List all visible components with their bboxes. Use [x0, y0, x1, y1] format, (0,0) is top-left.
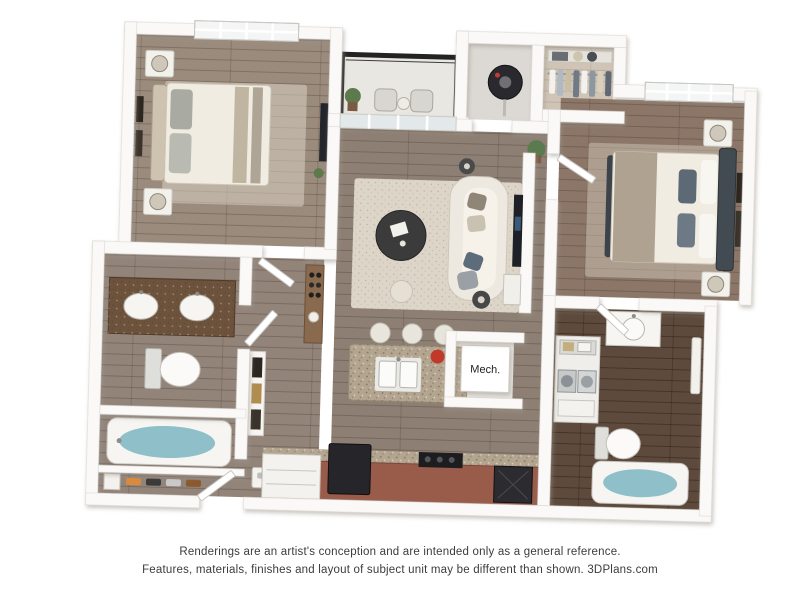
- bar-console: [304, 265, 324, 343]
- patio-chair: [410, 90, 433, 113]
- shoes: [126, 478, 141, 485]
- laundry-cabinet: [558, 400, 594, 417]
- floorplan-svg: Mech.: [0, 0, 800, 551]
- sink: [124, 293, 159, 320]
- framed-art: [251, 383, 262, 403]
- pouf: [390, 280, 413, 303]
- wall-art: [135, 130, 143, 156]
- bed-1: [150, 82, 271, 185]
- wall: [547, 110, 560, 154]
- vase: [309, 312, 319, 322]
- pillow: [700, 160, 717, 204]
- window-bedroom1: [194, 21, 298, 42]
- framed-art: [252, 357, 263, 377]
- balcony-floor: [340, 56, 456, 119]
- toilet-2: [595, 427, 641, 460]
- blanket-stripe: [232, 87, 249, 183]
- wall: [454, 31, 469, 131]
- plant-pot: [347, 102, 357, 111]
- coffee-table: [375, 210, 426, 261]
- barstool: [370, 323, 391, 344]
- refrigerator: [328, 444, 371, 495]
- table-lamp: [707, 276, 723, 292]
- throw-pillow: [466, 215, 486, 233]
- table-lamp: [710, 125, 726, 141]
- wall: [444, 331, 456, 407]
- media-console: [503, 274, 521, 304]
- disclaimer-line1: Renderings are an artist's conception an…: [0, 546, 800, 558]
- headboard: [716, 148, 736, 270]
- barstool: [402, 324, 423, 345]
- table-lamp: [150, 193, 166, 209]
- shoes: [146, 478, 161, 485]
- window-bedroom2: [645, 82, 733, 102]
- entry-cabinet: [262, 454, 321, 500]
- patio-chair: [374, 89, 397, 112]
- accent-pillow: [677, 213, 696, 247]
- tv-screen-glint: [515, 217, 521, 231]
- blanket: [612, 151, 657, 262]
- wall: [446, 331, 524, 343]
- sofa: [447, 176, 508, 302]
- disclaimer-line2: Features, materials, finishes and layout…: [0, 564, 800, 576]
- laundry-nook: [554, 336, 600, 423]
- mechanical-closet: Mech.: [461, 345, 510, 392]
- shoes: [186, 480, 201, 487]
- sink: [180, 294, 215, 321]
- bathtub-2: [592, 461, 689, 506]
- towel-bar: [691, 338, 702, 394]
- page: Mech.: [0, 0, 800, 600]
- shoes: [166, 479, 181, 486]
- accent-pillow: [678, 169, 697, 203]
- wall: [239, 257, 252, 305]
- bathtub: [106, 417, 231, 466]
- wall-art: [136, 96, 144, 122]
- pillow: [169, 133, 192, 174]
- storage-box: [578, 342, 591, 351]
- shoe-box: [104, 473, 120, 489]
- framed-art: [250, 409, 261, 429]
- wall: [530, 45, 544, 121]
- pillow: [698, 214, 715, 258]
- patio-table: [397, 97, 409, 109]
- mech-label: Mech.: [470, 363, 500, 376]
- sliding-glass-door: [340, 114, 456, 131]
- pillow: [170, 89, 193, 130]
- table-lamp: [151, 55, 167, 71]
- storage-box: [563, 342, 574, 351]
- wall: [444, 397, 522, 409]
- bed-2: [604, 145, 736, 271]
- floorplan-rendering: Mech.: [0, 0, 800, 556]
- wall: [543, 199, 558, 295]
- suitcase: [552, 52, 568, 61]
